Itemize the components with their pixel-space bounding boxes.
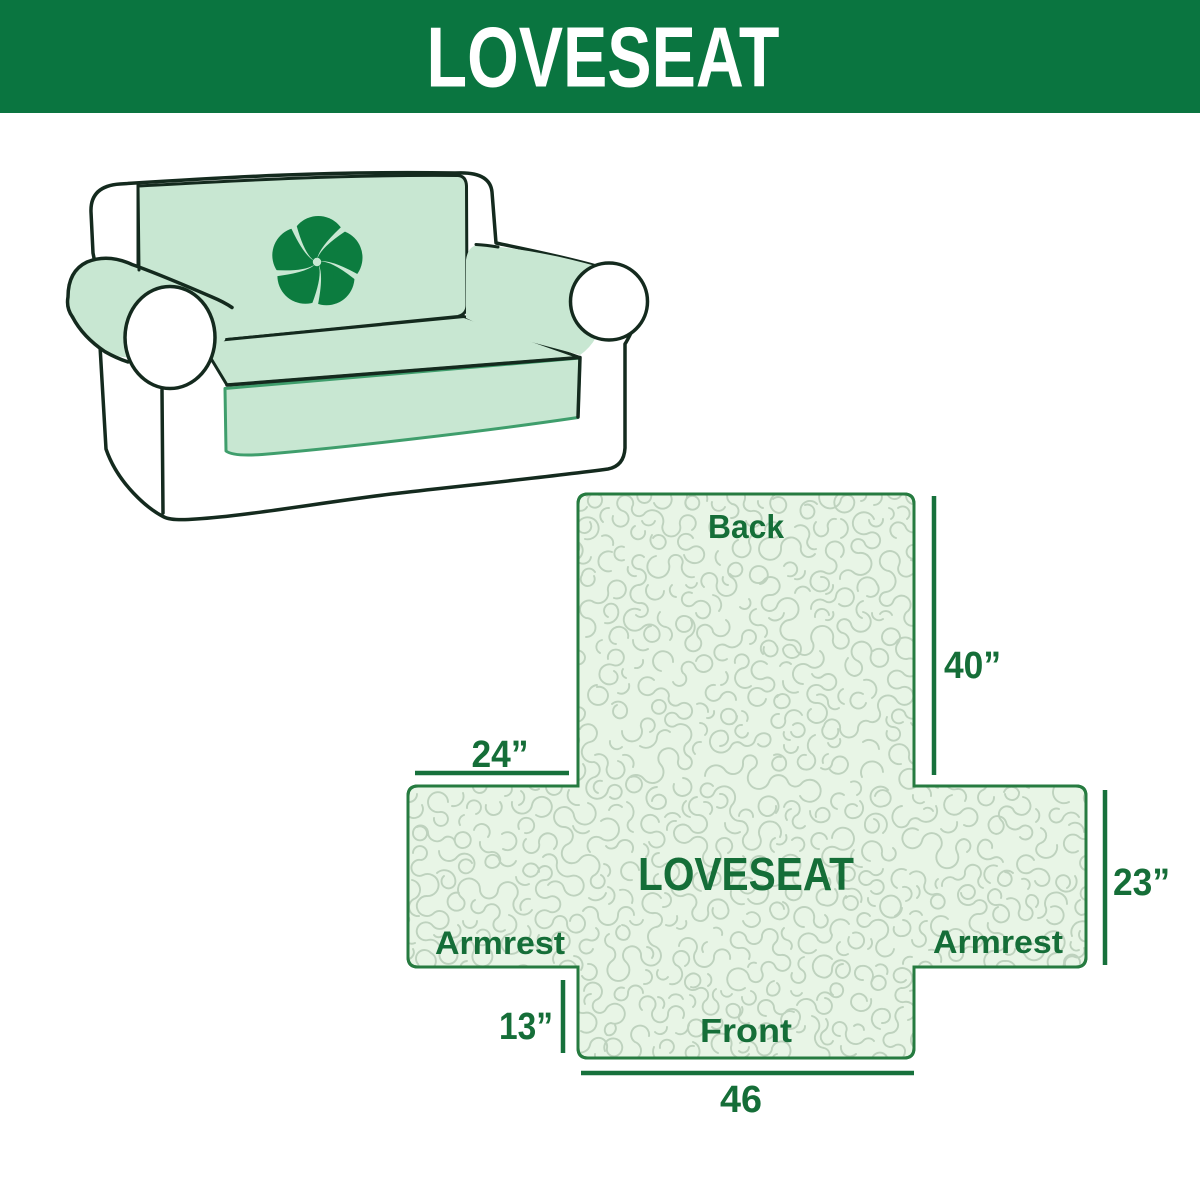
svg-text:LOVESEAT: LOVESEAT	[638, 848, 854, 900]
svg-text:Armrest: Armrest	[933, 924, 1063, 960]
svg-text:Armrest: Armrest	[435, 925, 565, 961]
svg-text:13”: 13”	[499, 1006, 553, 1048]
svg-text:23”: 23”	[1113, 862, 1170, 904]
svg-text:24”: 24”	[472, 734, 529, 776]
svg-text:Back: Back	[708, 508, 785, 545]
svg-text:Front: Front	[700, 1012, 792, 1049]
svg-text:46: 46	[720, 1079, 762, 1121]
svg-text:40”: 40”	[944, 645, 1001, 687]
svg-text:LOVESEAT: LOVESEAT	[427, 11, 780, 106]
